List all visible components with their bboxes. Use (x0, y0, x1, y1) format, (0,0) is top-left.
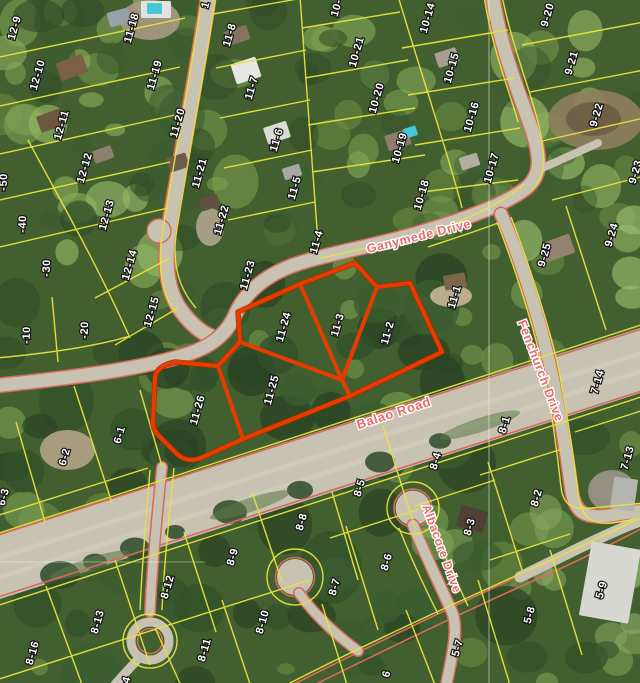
aerial-parcel-map: 12-912-1012-1112-1212-1312-1412-15-50-40… (0, 0, 640, 683)
driveway-bulge (147, 219, 171, 243)
tree (287, 481, 313, 499)
parcel-label--30: -30 (41, 259, 54, 277)
swimming-pool (147, 3, 162, 14)
parcel-label--10: -10 (21, 326, 34, 344)
parcel-label--50: -50 (0, 173, 10, 191)
parcel-label--40: -40 (17, 215, 30, 233)
tree (365, 452, 395, 473)
map-viewport[interactable]: 12-912-1012-1112-1212-1312-1412-15-50-40… (0, 0, 640, 683)
parcel-label--20: -20 (79, 321, 92, 339)
